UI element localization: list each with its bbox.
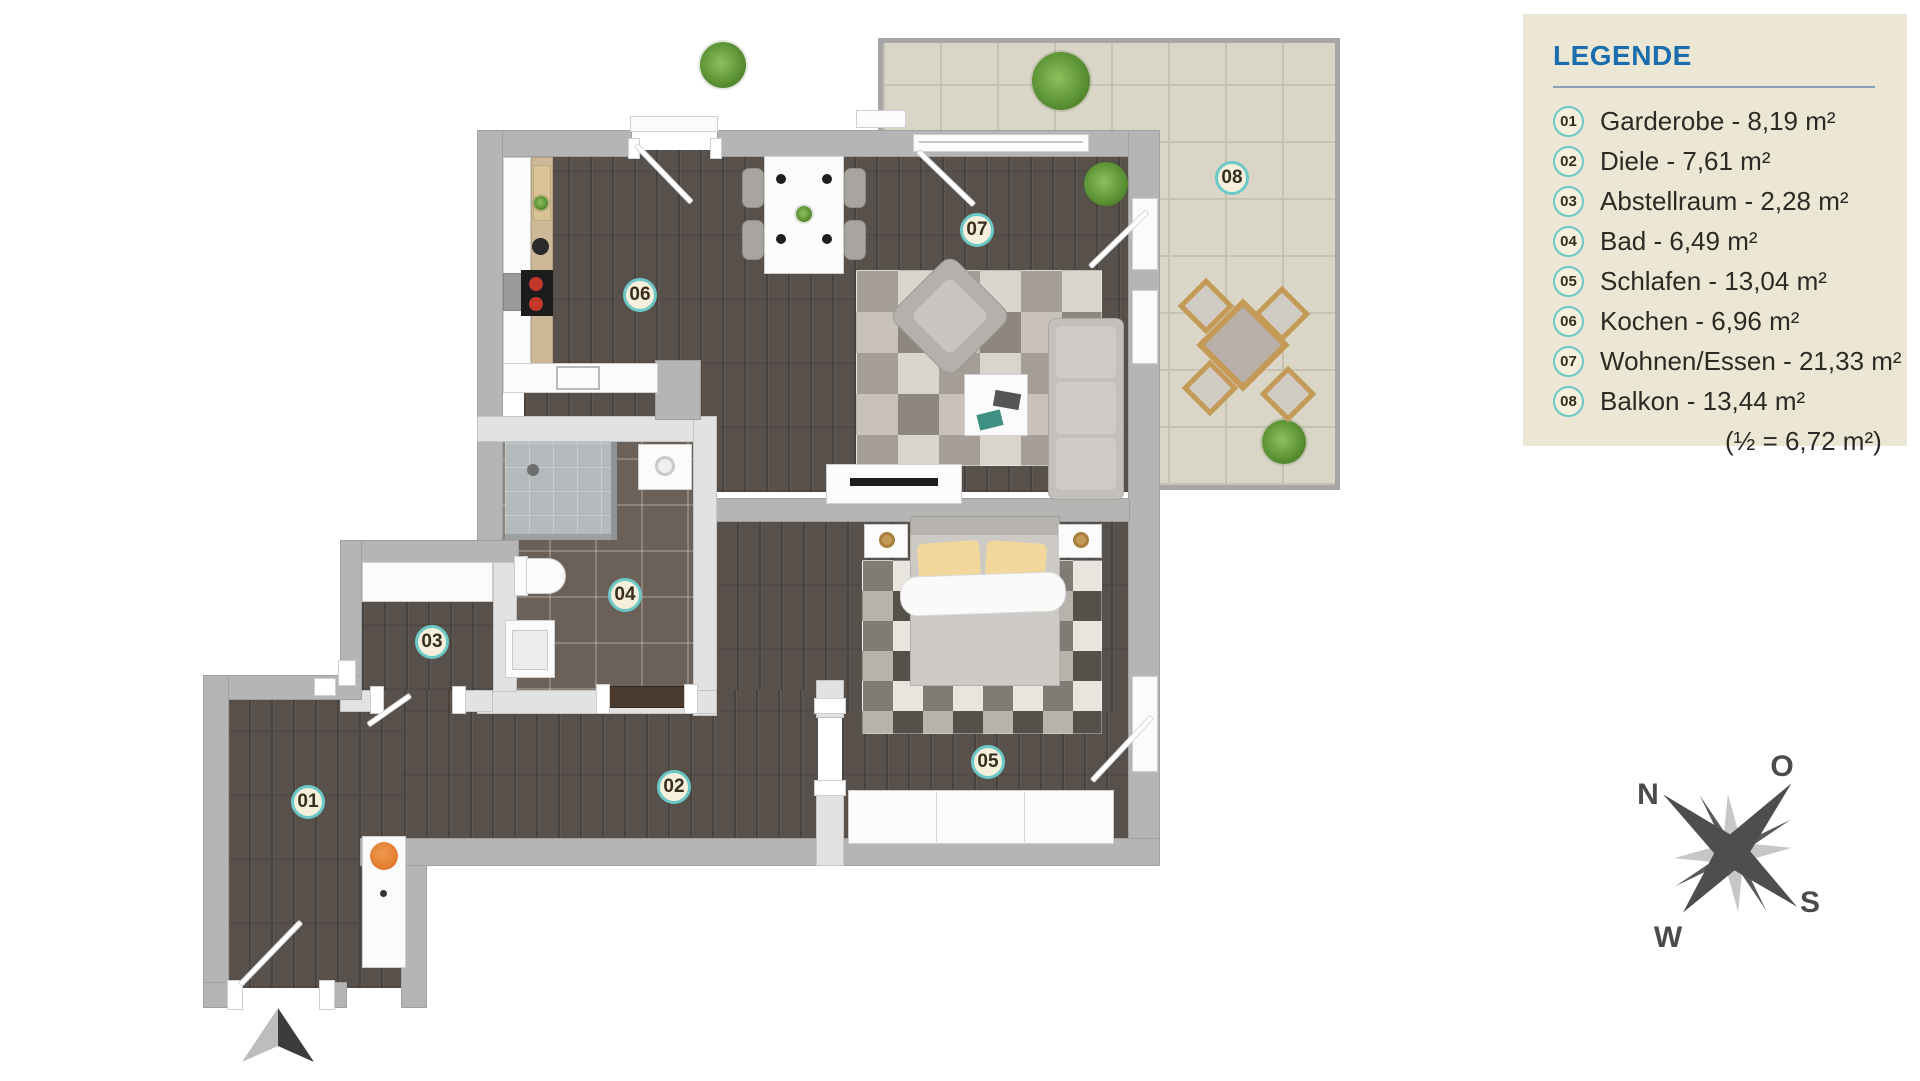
shower xyxy=(505,442,611,540)
dining-chair xyxy=(844,168,866,208)
room-badge-08: 08 xyxy=(1215,161,1249,195)
floor-plan-canvas: 01 02 03 04 05 06 07 08 LEGENDE 01 Garde… xyxy=(0,0,1920,1081)
table-dot xyxy=(776,174,786,184)
door-frame xyxy=(814,698,846,714)
sofa-cushion xyxy=(1056,438,1116,490)
table-plant-icon xyxy=(796,206,812,222)
window xyxy=(1132,290,1158,364)
door-frame xyxy=(684,684,698,714)
wall xyxy=(693,416,717,716)
door-frame xyxy=(596,684,610,714)
oven xyxy=(503,273,523,311)
compass-rose: N O S W xyxy=(1618,738,1848,968)
compass-east-label: O xyxy=(1770,750,1793,784)
legend-divider xyxy=(1553,86,1875,88)
legend-item: 04 Bad - 6,49 m² xyxy=(1553,226,1907,257)
lamp-icon xyxy=(1073,532,1089,548)
legend-badge: 05 xyxy=(1553,266,1584,297)
legend-item: 06 Kochen - 6,96 m² xyxy=(1553,306,1907,337)
legend-item: 01 Garderobe - 8,19 m² xyxy=(1553,106,1907,137)
window-box xyxy=(856,110,906,128)
wall xyxy=(477,130,503,568)
legend-note: (½ = 6,72 m²) xyxy=(1725,426,1907,457)
room-badge-05: 05 xyxy=(971,745,1005,779)
wall xyxy=(203,675,229,1008)
room-badge-01: 01 xyxy=(291,785,325,819)
compass-west-label: W xyxy=(1654,921,1682,955)
door-frame xyxy=(710,138,722,159)
burner-icon xyxy=(529,297,543,311)
legend-item: 02 Diele - 7,61 m² xyxy=(1553,146,1907,177)
wall xyxy=(340,540,519,564)
wall xyxy=(655,360,701,420)
room-badge-02: 02 xyxy=(657,770,691,804)
sofa-cushion xyxy=(1056,326,1116,378)
legend-badge: 04 xyxy=(1553,226,1584,257)
cutting-board xyxy=(533,165,551,221)
window-box xyxy=(630,116,718,132)
legend-item-label: Garderobe - 8,19 m² xyxy=(1600,106,1836,137)
legend-item: 08 Balkon - 13,44 m² xyxy=(1553,386,1907,417)
shower-glass xyxy=(505,534,611,540)
balcony-plant-icon xyxy=(1032,52,1090,110)
wardrobe xyxy=(848,790,1114,844)
kitchen-plant-icon xyxy=(534,196,548,210)
dining-chair xyxy=(742,168,764,208)
sofa-cushion xyxy=(1056,382,1116,434)
legend-item-label: Kochen - 6,96 m² xyxy=(1600,306,1799,337)
living-plant-icon xyxy=(1084,162,1128,206)
knob-icon xyxy=(380,890,387,897)
door-frame xyxy=(814,780,846,796)
legend-item-label: Abstellraum - 2,28 m² xyxy=(1600,186,1849,217)
bath-sink-basin xyxy=(512,630,548,670)
table-dot xyxy=(822,174,832,184)
kitchen-sink xyxy=(556,366,600,390)
legend-item-label: Balkon - 13,44 m² xyxy=(1600,386,1805,417)
legend-item-label: Wohnen/Essen - 21,33 m² xyxy=(1600,346,1902,377)
decor-bowl xyxy=(370,842,398,870)
washer-door-icon xyxy=(655,456,675,476)
legend-item: 07 Wohnen/Essen - 21,33 m² xyxy=(1553,346,1907,377)
legend-item-label: Bad - 6,49 m² xyxy=(1600,226,1758,257)
room-badge-07: 07 xyxy=(960,213,994,247)
dining-chair xyxy=(844,220,866,260)
duvet xyxy=(899,571,1066,617)
door-frame xyxy=(452,686,466,714)
legend-badge: 01 xyxy=(1553,106,1584,137)
burner-icon xyxy=(529,277,543,291)
wardrobe-seam xyxy=(936,792,937,842)
wardrobe-seam xyxy=(1024,792,1025,842)
window xyxy=(913,134,1089,152)
toilet xyxy=(526,558,566,594)
legend-item: 03 Abstellraum - 2,28 m² xyxy=(1553,186,1907,217)
legend-badge: 06 xyxy=(1553,306,1584,337)
door-frame xyxy=(338,660,356,686)
compass-south-label: S xyxy=(1800,886,1820,920)
room-badge-04: 04 xyxy=(608,578,642,612)
room-badge-03: 03 xyxy=(415,625,449,659)
hall-sideboard xyxy=(606,686,686,708)
entrance-arrow-icon xyxy=(232,1006,324,1068)
dining-chair xyxy=(742,220,764,260)
legend-badge: 07 xyxy=(1553,346,1584,377)
legend-item-label: Diele - 7,61 m² xyxy=(1600,146,1771,177)
legend-badge: 08 xyxy=(1553,386,1584,417)
door-frame xyxy=(314,678,336,696)
table-dot xyxy=(822,234,832,244)
kettle xyxy=(532,238,549,255)
door-frame xyxy=(370,686,384,714)
bed-headboard xyxy=(910,516,1060,536)
legend-title: LEGENDE xyxy=(1553,40,1907,72)
balcony-plant-icon xyxy=(1262,420,1306,464)
shower-glass xyxy=(611,442,617,540)
table-dot xyxy=(776,234,786,244)
tv xyxy=(850,478,938,486)
legend-item: 05 Schlafen - 13,04 m² xyxy=(1553,266,1907,297)
room-badge-06: 06 xyxy=(623,278,657,312)
lamp-icon xyxy=(879,532,895,548)
window-glass-line xyxy=(919,141,1083,143)
balcony-plant-icon xyxy=(700,42,746,88)
legend-badge: 03 xyxy=(1553,186,1584,217)
legend-item-label: Schlafen - 13,04 m² xyxy=(1600,266,1827,297)
compass-north-label: N xyxy=(1637,778,1659,812)
storage-shelf xyxy=(362,562,493,602)
legend-panel: LEGENDE 01 Garderobe - 8,19 m² 02 Diele … xyxy=(1523,14,1907,446)
shower-head-icon xyxy=(527,464,539,476)
legend-badge: 02 xyxy=(1553,146,1584,177)
